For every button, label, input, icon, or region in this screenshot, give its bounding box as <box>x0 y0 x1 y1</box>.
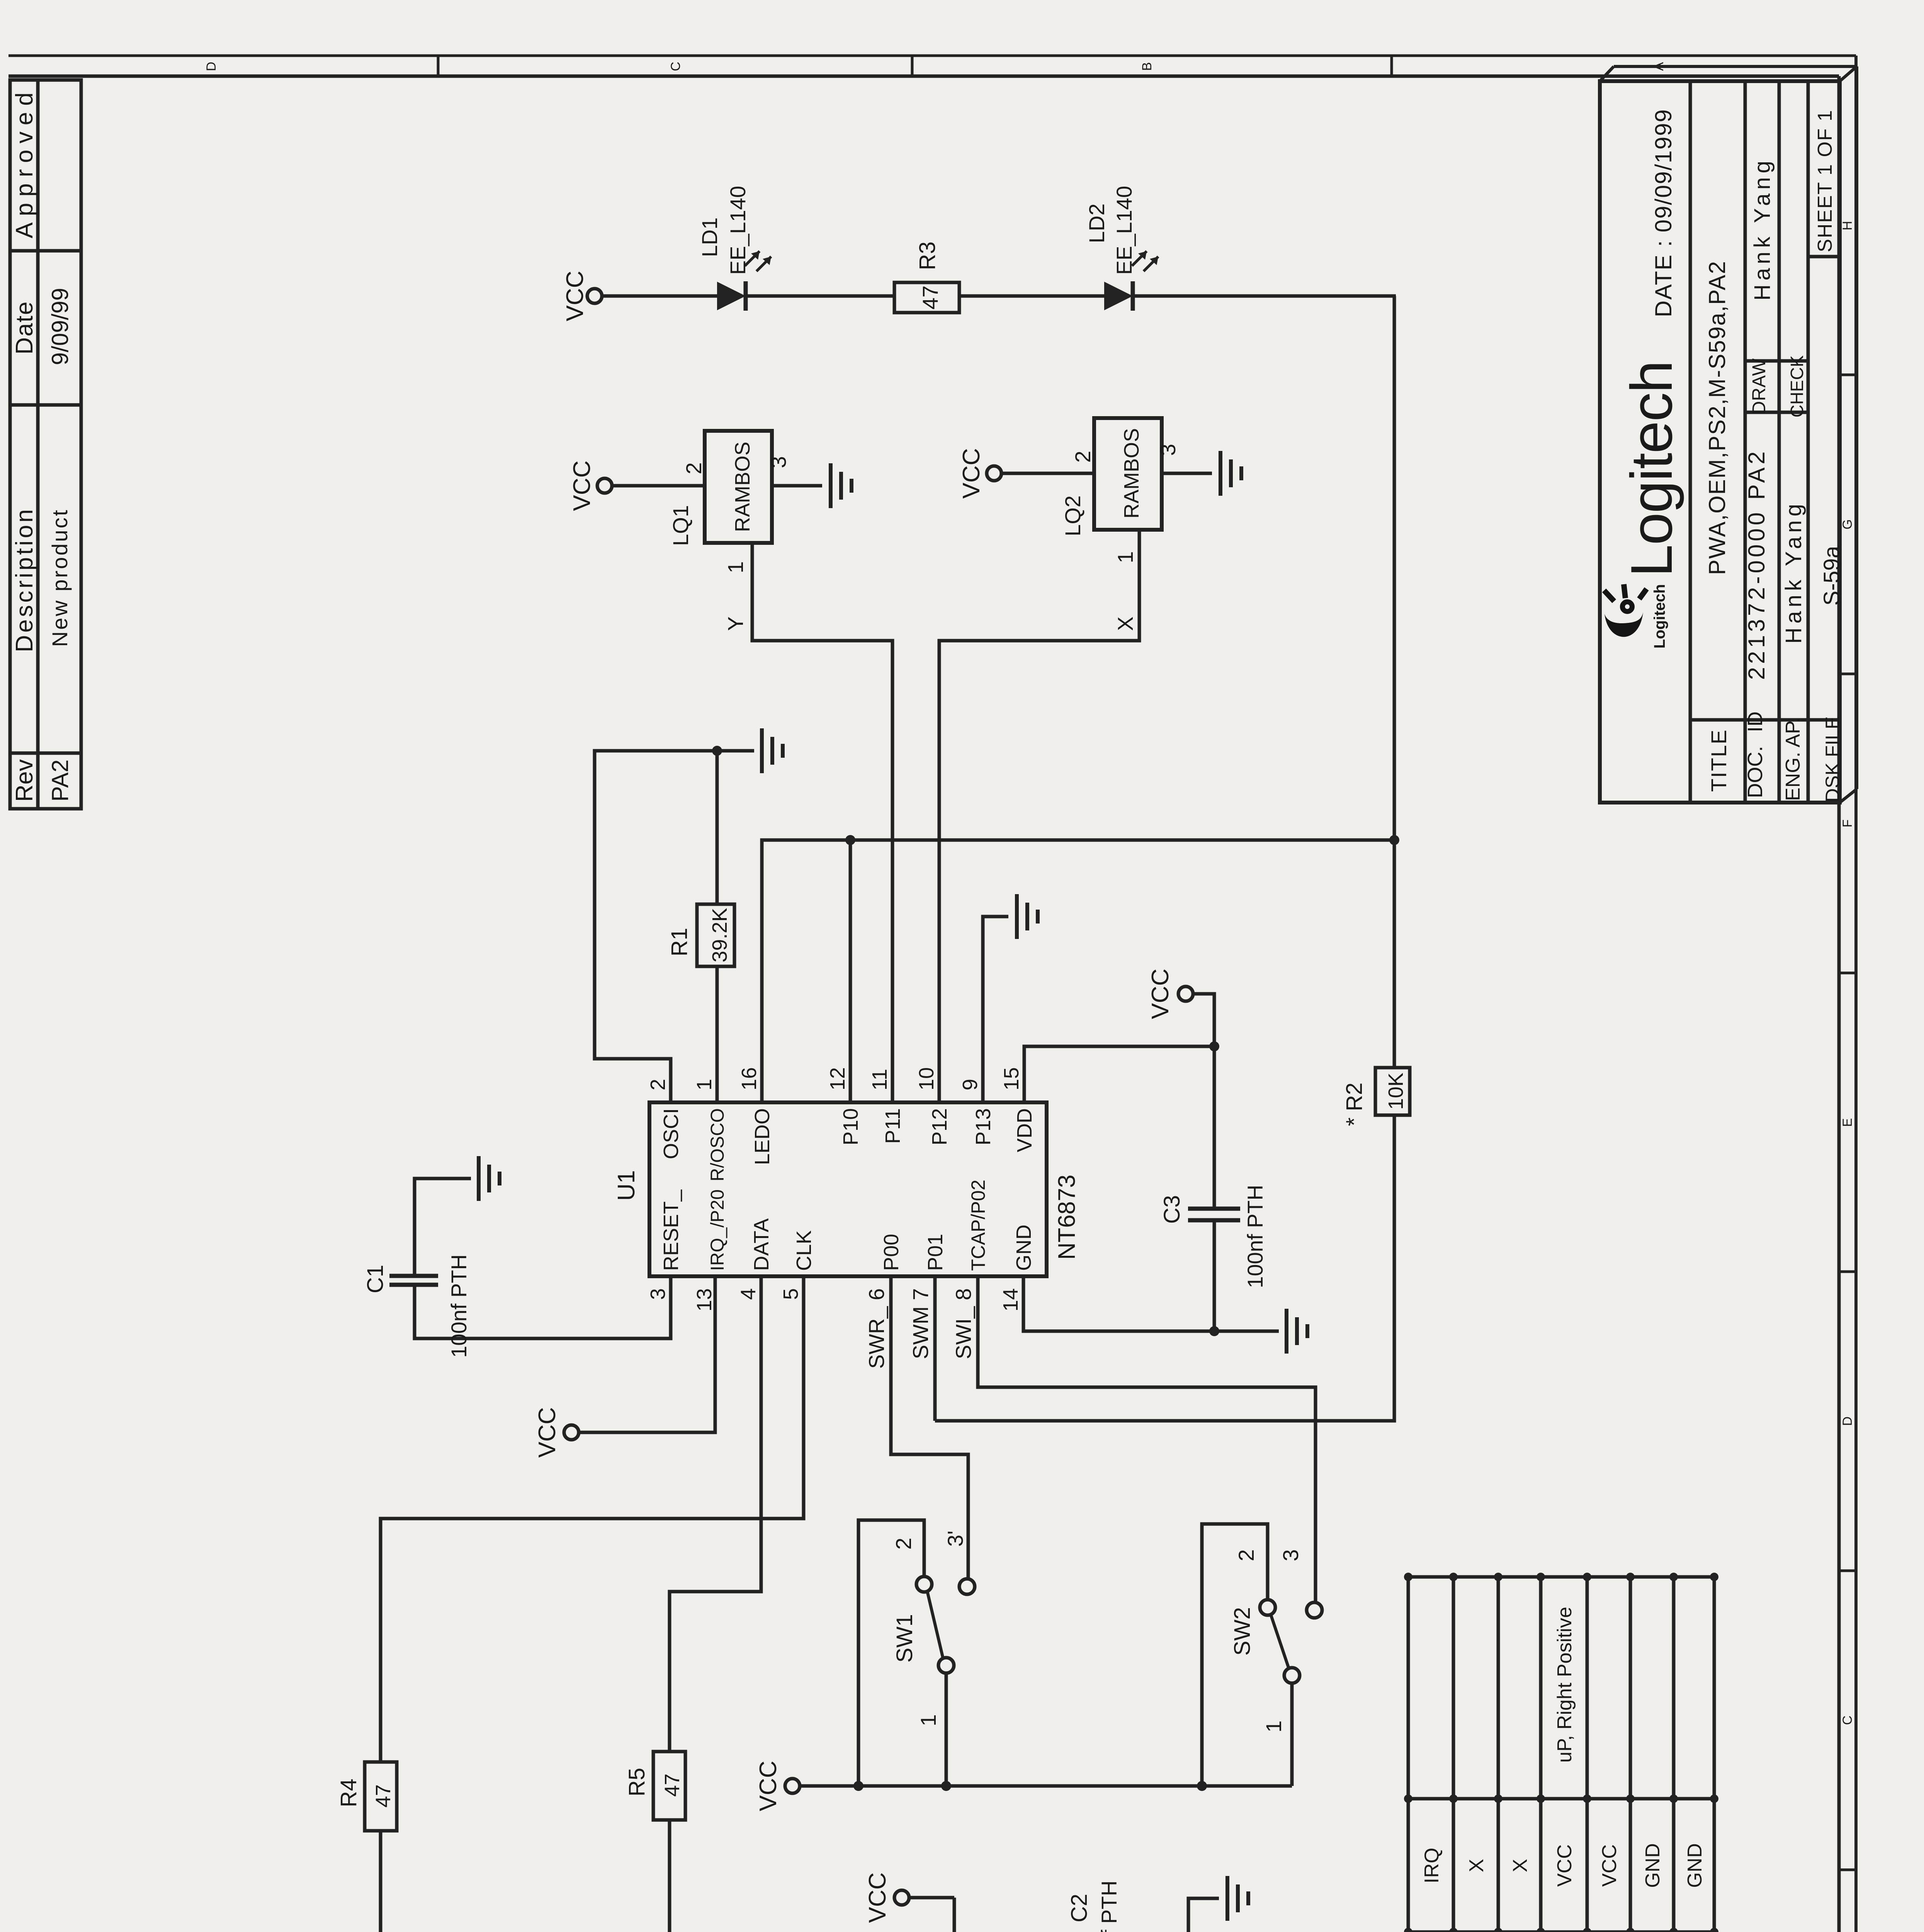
svg-text:5: 5 <box>779 1288 802 1300</box>
svg-text:1: 1 <box>1113 551 1137 563</box>
svg-text:10K: 10K <box>1384 1073 1407 1110</box>
svg-text:RESET_: RESET_ <box>659 1189 683 1271</box>
svg-text:C: C <box>668 62 683 71</box>
svg-text:16: 16 <box>738 1067 761 1090</box>
svg-text:10: 10 <box>915 1067 938 1090</box>
svg-text:EE_L140: EE_L140 <box>1112 186 1136 275</box>
svg-text:TCAP/P02: TCAP/P02 <box>967 1180 989 1271</box>
svg-text:C2: C2 <box>1067 1894 1092 1922</box>
svg-text:P11: P11 <box>881 1108 904 1144</box>
svg-text:R4: R4 <box>336 1779 361 1807</box>
svg-text:3: 3 <box>1278 1549 1303 1561</box>
svg-text:2: 2 <box>1071 451 1095 463</box>
svg-text:1: 1 <box>1261 1720 1286 1732</box>
svg-text:EE_L140: EE_L140 <box>726 186 750 275</box>
svg-text:U1: U1 <box>613 1170 640 1201</box>
svg-text:Date: Date <box>11 301 38 355</box>
svg-text:CHECK: CHECK <box>1787 355 1807 417</box>
svg-text:IRQ_/P20: IRQ_/P20 <box>707 1189 728 1271</box>
svg-text:3: 3 <box>766 456 790 468</box>
svg-text:9: 9 <box>959 1079 982 1090</box>
svg-text:P10: P10 <box>839 1108 862 1145</box>
svg-text:12: 12 <box>826 1067 849 1090</box>
svg-text:39.2K: 39.2K <box>708 908 731 962</box>
svg-text:CLK: CLK <box>792 1230 816 1271</box>
svg-text:Logitech: Logitech <box>1619 361 1684 577</box>
svg-text:VCC: VCC <box>864 1872 891 1923</box>
svg-text:VCC: VCC <box>1553 1844 1576 1887</box>
svg-text:C3: C3 <box>1159 1195 1185 1224</box>
svg-text:13: 13 <box>693 1288 716 1311</box>
svg-text:B: B <box>1140 62 1154 71</box>
svg-text:14: 14 <box>999 1288 1022 1311</box>
svg-text:Hank Yang: Hank Yang <box>1781 500 1806 644</box>
svg-text:TITLE: TITLE <box>1706 729 1731 792</box>
svg-text:R5: R5 <box>624 1768 649 1796</box>
svg-text:1: 1 <box>916 1714 940 1726</box>
svg-text:2: 2 <box>682 462 706 474</box>
svg-text:10uf PTH: 10uf PTH <box>1097 1881 1121 1932</box>
svg-text:2: 2 <box>891 1537 916 1549</box>
svg-text:VDD: VDD <box>1013 1108 1036 1152</box>
svg-text:D: D <box>1840 1417 1855 1426</box>
svg-text:R3: R3 <box>915 241 940 270</box>
svg-text:DRAW: DRAW <box>1749 358 1769 415</box>
svg-text:DSK FILE: DSK FILE <box>1822 716 1843 802</box>
svg-text:Y: Y <box>723 616 748 631</box>
svg-text:P00: P00 <box>880 1234 903 1271</box>
svg-text:47: 47 <box>661 1774 684 1797</box>
svg-text:P01: P01 <box>924 1234 947 1271</box>
svg-text:Logitech: Logitech <box>1651 584 1668 649</box>
svg-text:GND: GND <box>1012 1225 1035 1271</box>
svg-text:1: 1 <box>693 1079 716 1090</box>
svg-text:OSCI: OSCI <box>659 1108 683 1159</box>
svg-text:Description: Description <box>11 507 38 652</box>
svg-text:SHEET 1 OF 1: SHEET 1 OF 1 <box>1814 109 1836 252</box>
svg-text:LQ2: LQ2 <box>1061 495 1085 536</box>
svg-text:P13: P13 <box>972 1108 995 1145</box>
svg-text:X: X <box>1113 616 1137 631</box>
svg-text:P12: P12 <box>928 1108 951 1145</box>
svg-text:47: 47 <box>372 1784 395 1808</box>
svg-text:221372-0000 PA2: 221372-0000 PA2 <box>1744 448 1769 680</box>
svg-text:ID: ID <box>1744 711 1767 732</box>
svg-text:LD1: LD1 <box>697 218 722 257</box>
svg-text:Hank Yang: Hank Yang <box>1750 157 1775 301</box>
svg-text:LEDO: LEDO <box>751 1108 774 1165</box>
svg-text:R/OSCO: R/OSCO <box>707 1108 728 1181</box>
svg-text:VCC: VCC <box>1147 969 1174 1019</box>
svg-text:Approved: Approved <box>11 86 38 238</box>
svg-text:* R2: * R2 <box>1342 1083 1367 1126</box>
svg-text:1: 1 <box>723 561 748 573</box>
svg-text:100nf PTH: 100nf PTH <box>447 1254 471 1358</box>
svg-text:VCC: VCC <box>958 448 985 499</box>
svg-text:uP, Right Positive: uP, Right Positive <box>1553 1607 1576 1763</box>
svg-text:G: G <box>1840 519 1855 529</box>
svg-text:15: 15 <box>1000 1067 1023 1090</box>
svg-text:SW1: SW1 <box>892 1614 917 1663</box>
svg-text:SWR_ 6: SWR_ 6 <box>864 1288 889 1369</box>
svg-text:New product: New product <box>48 509 72 647</box>
svg-text:VCC: VCC <box>569 461 595 511</box>
svg-text:H: H <box>1840 221 1855 231</box>
svg-text:Rev: Rev <box>11 759 38 802</box>
svg-text:X: X <box>1509 1859 1531 1872</box>
svg-text:SWM 7: SWM 7 <box>908 1288 933 1359</box>
svg-text:100nf PTH: 100nf PTH <box>1243 1185 1267 1288</box>
svg-text:ENG. AP.: ENG. AP. <box>1782 718 1804 801</box>
svg-text:3: 3 <box>646 1288 670 1300</box>
svg-text:2: 2 <box>646 1079 670 1090</box>
svg-text:VCC: VCC <box>534 1407 561 1458</box>
svg-text:C: C <box>1840 1716 1855 1725</box>
svg-text:S-59a: S-59a <box>1819 546 1844 606</box>
svg-text:NT6873: NT6873 <box>1054 1175 1080 1260</box>
svg-text:SW2: SW2 <box>1230 1607 1255 1656</box>
svg-text:DOC.: DOC. <box>1744 746 1767 798</box>
svg-text:LQ1: LQ1 <box>668 505 693 546</box>
svg-text:X: X <box>1465 1859 1488 1872</box>
svg-text:VCC: VCC <box>1598 1844 1621 1887</box>
svg-text:DATE : 09/09/1999: DATE : 09/09/1999 <box>1650 109 1676 317</box>
svg-text:GND: GND <box>1642 1843 1664 1888</box>
svg-text:R1: R1 <box>667 928 692 956</box>
svg-text:RAMBOS: RAMBOS <box>731 442 754 532</box>
svg-text:47: 47 <box>918 286 942 310</box>
svg-text:DATA: DATA <box>750 1218 773 1271</box>
svg-text:VCC: VCC <box>755 1761 782 1811</box>
svg-text:2: 2 <box>1234 1549 1258 1561</box>
svg-text:3': 3' <box>943 1531 967 1547</box>
svg-text:SWI_ 8: SWI_ 8 <box>951 1288 976 1359</box>
svg-text:PA2: PA2 <box>47 760 73 802</box>
svg-text:LD2: LD2 <box>1084 204 1109 243</box>
svg-text:GND: GND <box>1684 1843 1706 1888</box>
svg-text:E: E <box>1840 1118 1855 1127</box>
svg-text:IRQ: IRQ <box>1421 1848 1443 1883</box>
svg-text:VCC: VCC <box>562 271 588 321</box>
svg-text:4: 4 <box>737 1288 760 1300</box>
svg-text:PWA,OEM,PS2,M-S59a,PA2: PWA,OEM,PS2,M-S59a,PA2 <box>1704 260 1730 575</box>
svg-text:D: D <box>204 62 219 71</box>
svg-text:RAMBOS: RAMBOS <box>1120 428 1143 519</box>
svg-text:F: F <box>1840 820 1855 828</box>
svg-text:11: 11 <box>868 1069 891 1090</box>
svg-text:C1: C1 <box>363 1265 388 1293</box>
svg-text:3: 3 <box>1156 444 1180 456</box>
svg-text:9/09/99: 9/09/99 <box>47 288 73 365</box>
